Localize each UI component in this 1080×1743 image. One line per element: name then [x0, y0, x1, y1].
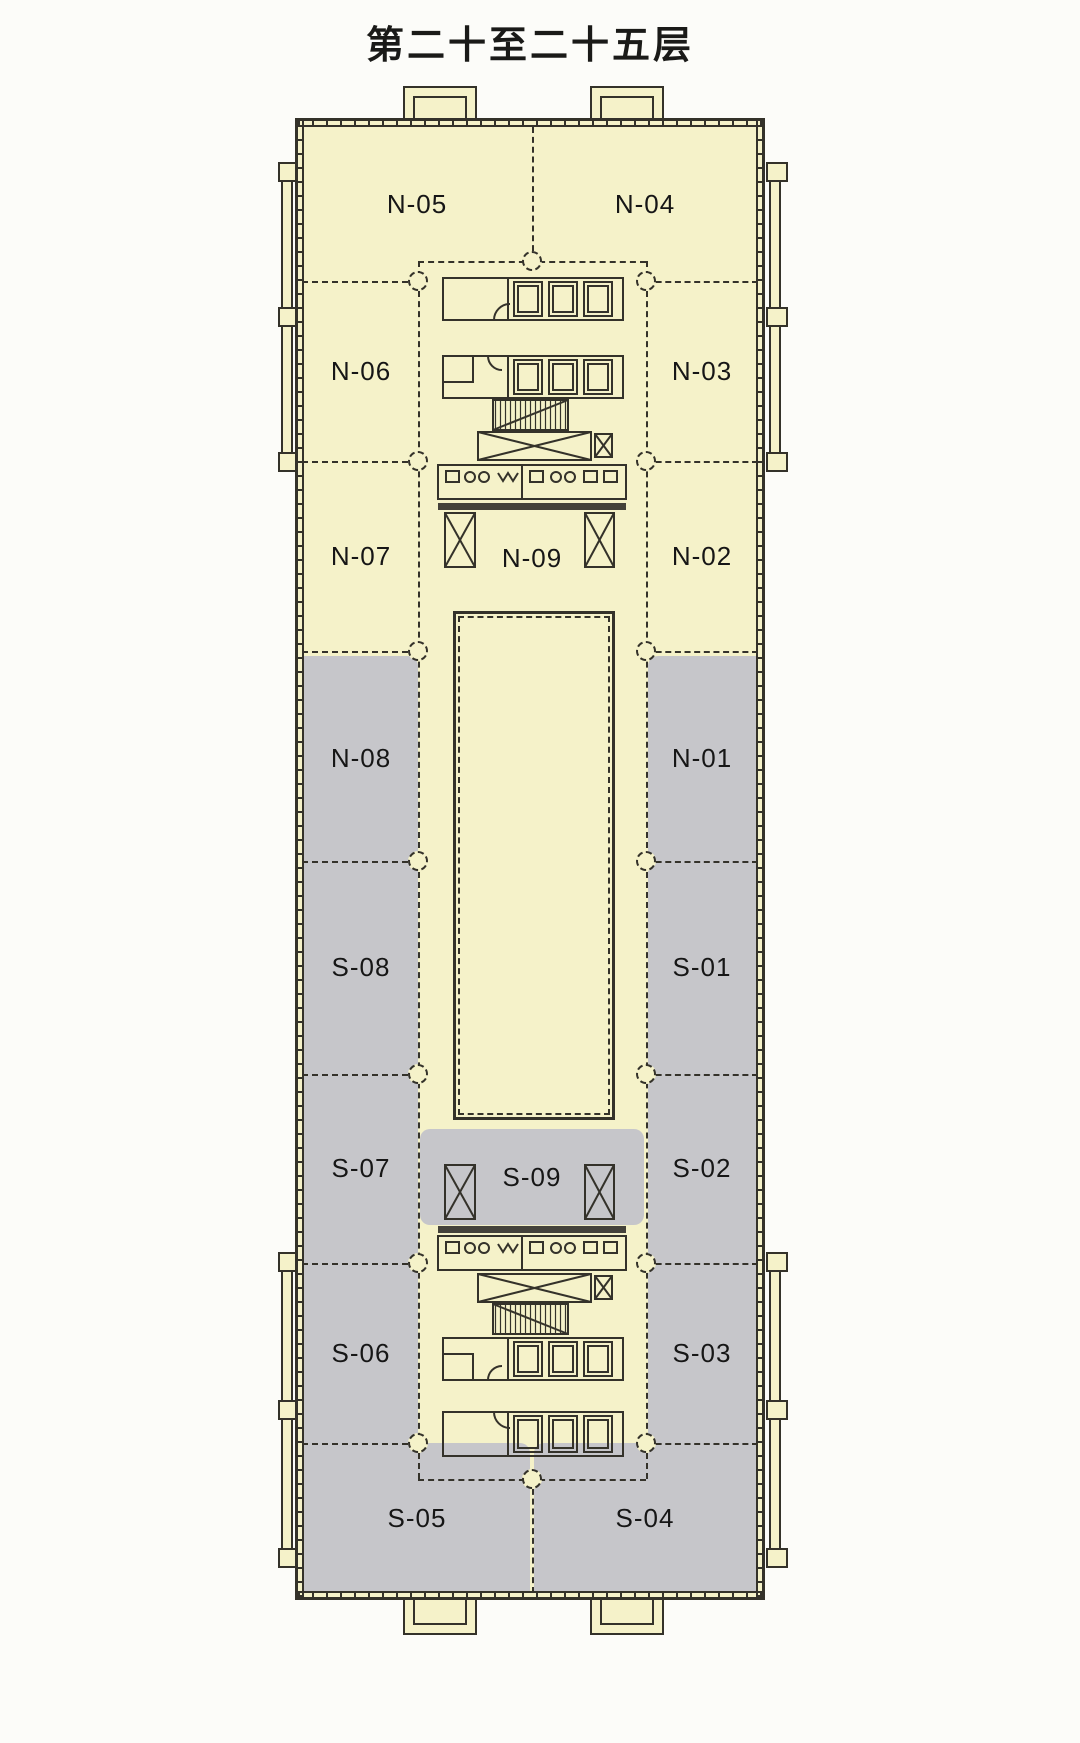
fin-block [766, 1400, 788, 1420]
unit-divider [302, 281, 418, 283]
floor-plan-page: 第二十至二十五层 N-05 N-04 N-06 N-03 N-07 N-09 N… [0, 0, 1080, 1743]
unit-label: N-04 [615, 189, 675, 220]
facade-fin-right-top [769, 168, 781, 466]
divider-arc [636, 851, 656, 871]
unit-divider [646, 1263, 758, 1265]
roof-stub-bottom-left [403, 1597, 477, 1635]
unit-divider [532, 127, 534, 261]
unit-label: N-07 [331, 541, 391, 572]
unit-n-01: N-01 [648, 656, 756, 861]
unit-s-01: S-01 [648, 861, 756, 1074]
fin-block [766, 307, 788, 327]
unit-divider [302, 1074, 418, 1076]
unit-divider [302, 1443, 418, 1445]
floor-plan: N-05 N-04 N-06 N-03 N-07 N-09 N-02 N-08 … [295, 118, 765, 1600]
facade-fin-left-bottom [281, 1258, 293, 1562]
unit-label: N-03 [672, 356, 732, 387]
unit-label: S-03 [673, 1338, 732, 1369]
unit-label: N-02 [672, 541, 732, 572]
exterior-wall-right [756, 121, 762, 1597]
atrium-lightwell [453, 611, 615, 1120]
divider-arc [636, 641, 656, 661]
unit-divider [532, 1479, 534, 1593]
divider-arc [408, 641, 428, 661]
divider-arc [408, 851, 428, 871]
south-core-drawing [418, 1120, 646, 1479]
unit-s-03: S-03 [648, 1263, 756, 1443]
unit-n-06: N-06 [304, 281, 418, 461]
roof-stub-inner [413, 1599, 467, 1625]
unit-label: S-06 [332, 1338, 391, 1369]
unit-label: S-08 [332, 952, 391, 983]
unit-divider [646, 861, 758, 863]
unit-label: S-07 [332, 1153, 391, 1184]
fin-cap [766, 452, 788, 472]
unit-s-02: S-02 [648, 1074, 756, 1263]
floor-range-title: 第二十至二十五层 [295, 14, 765, 69]
unit-divider [646, 461, 758, 463]
unit-n-04: N-04 [534, 127, 756, 281]
unit-label: N-05 [387, 189, 447, 220]
unit-label: S-01 [673, 952, 732, 983]
facade-fin-left-top [281, 168, 293, 466]
roof-stub-bottom-right [590, 1597, 664, 1635]
facade-fin-right-bottom [769, 1258, 781, 1562]
divider-arc [636, 1064, 656, 1084]
unit-divider [646, 651, 758, 653]
unit-divider [646, 1074, 758, 1076]
unit-label: S-04 [616, 1503, 675, 1534]
unit-s-06: S-06 [304, 1263, 418, 1443]
unit-n-08: N-08 [304, 656, 418, 861]
unit-label: N-08 [331, 743, 391, 774]
unit-n-02: N-02 [648, 461, 756, 651]
unit-divider [646, 1443, 758, 1445]
north-core-drawing [418, 261, 646, 609]
fin-cap [766, 162, 788, 182]
unit-label: N-06 [331, 356, 391, 387]
unit-divider [302, 651, 418, 653]
unit-label: S-05 [388, 1503, 447, 1534]
unit-n-05: N-05 [304, 127, 530, 281]
unit-n-03: N-03 [648, 281, 756, 461]
unit-label: N-01 [672, 743, 732, 774]
unit-s-08: S-08 [304, 861, 418, 1074]
unit-label: S-02 [673, 1153, 732, 1184]
unit-divider [302, 1263, 418, 1265]
unit-divider [302, 861, 418, 863]
roof-stub-inner [600, 1599, 654, 1625]
fin-cap [766, 1548, 788, 1568]
divider-arc [408, 1064, 428, 1084]
fin-cap [766, 1252, 788, 1272]
unit-n-07: N-07 [304, 461, 418, 651]
unit-s-07: S-07 [304, 1074, 418, 1263]
unit-divider [646, 281, 758, 283]
unit-divider [302, 461, 418, 463]
